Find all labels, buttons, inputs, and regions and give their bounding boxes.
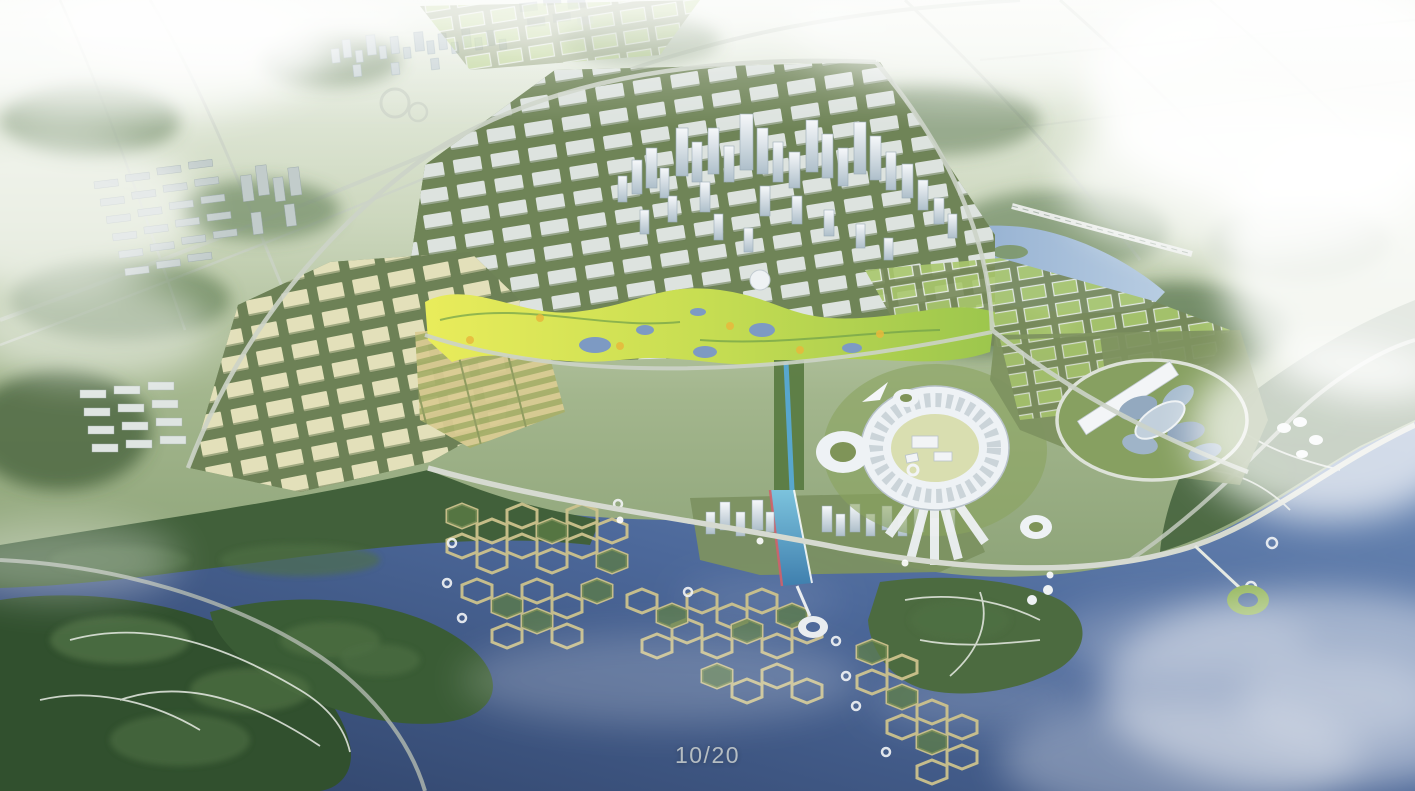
top-haze-gradient	[0, 0, 1415, 130]
dome-pavilion	[1027, 595, 1037, 605]
dome-pavilion-2	[1043, 585, 1053, 595]
reservoir-island-2	[992, 245, 1028, 259]
image-viewer: 10/20	[0, 0, 1415, 791]
grand-axis-canal	[774, 360, 804, 490]
masterplan-aerial-rendering	[0, 0, 1415, 791]
small-ring-west-center	[830, 442, 856, 462]
biodome	[750, 270, 770, 290]
small-ring-north-center	[900, 394, 912, 402]
tiny-ring-southeast-center	[1029, 522, 1043, 532]
circular-pier-center	[806, 622, 820, 632]
